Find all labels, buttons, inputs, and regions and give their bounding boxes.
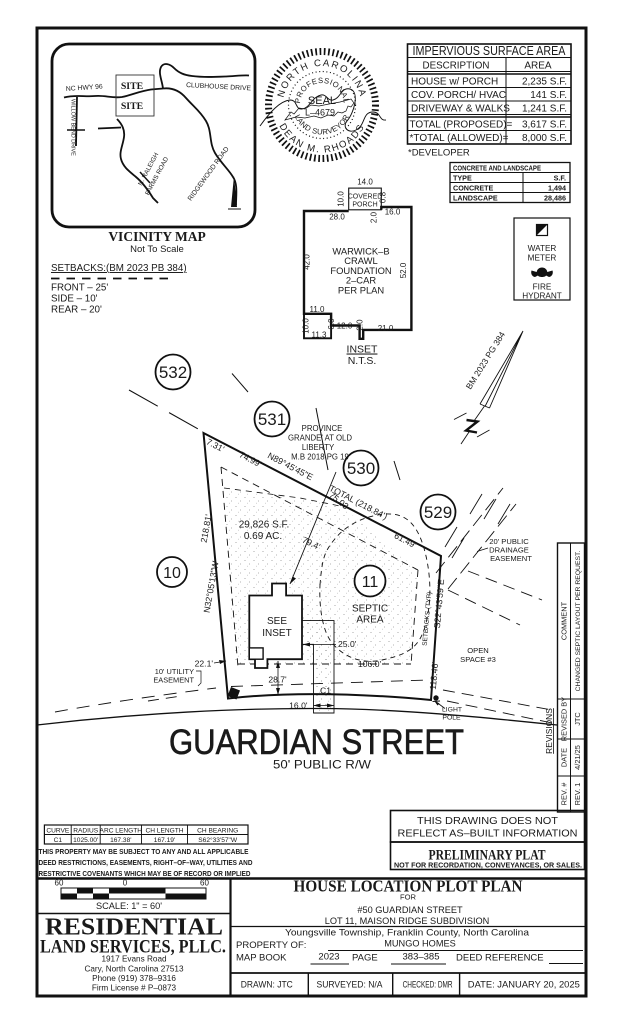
- svg-text:Phone (919) 378–9316: Phone (919) 378–9316: [92, 974, 176, 983]
- svg-text:141 S.F.: 141 S.F.: [530, 90, 567, 101]
- svg-text:CH BEARING: CH BEARING: [197, 827, 238, 834]
- svg-text:EASEMENT: EASEMENT: [490, 554, 532, 563]
- svg-text:3,617 S.F.: 3,617 S.F.: [522, 120, 567, 131]
- svg-text:M.B 2018 PG 19: M.B 2018 PG 19: [291, 453, 349, 462]
- svg-text:16.0: 16.0: [385, 208, 401, 217]
- svg-text:Firm License # P–0873: Firm License # P–0873: [92, 984, 177, 993]
- svg-text:4/21/25: 4/21/25: [573, 745, 582, 770]
- svg-text:Cary, North Carolina 27513: Cary, North Carolina 27513: [84, 965, 184, 974]
- svg-text:1,494: 1,494: [548, 184, 566, 193]
- svg-text:10.0: 10.0: [302, 318, 311, 334]
- svg-text:6.0: 6.0: [327, 318, 336, 330]
- svg-text:0.8: 0.8: [379, 191, 388, 203]
- svg-text:CONCRETE: CONCRETE: [453, 184, 494, 193]
- svg-text:THIS PROPERTY MAY BE SUBJECT T: THIS PROPERTY MAY BE SUBJECT TO ANY AND …: [39, 847, 249, 856]
- svg-text:GRANDE' AT OLD: GRANDE' AT OLD: [288, 434, 352, 443]
- svg-text:28.0: 28.0: [329, 213, 345, 222]
- svg-text:FRONT – 25': FRONT – 25': [51, 283, 108, 294]
- svg-text:SITE: SITE: [121, 101, 144, 112]
- svg-text:THIS DRAWING DOES NOT: THIS DRAWING DOES NOT: [417, 815, 559, 827]
- svg-text:SPACE #3: SPACE #3: [460, 655, 496, 664]
- svg-text:CHANGED SEPTIC LAYOUT PER REQU: CHANGED SEPTIC LAYOUT PER REQUEST.: [575, 551, 582, 692]
- svg-text:1025.00': 1025.00': [73, 837, 98, 844]
- svg-text:INSET: INSET: [347, 344, 379, 356]
- svg-text:C1: C1: [54, 837, 63, 844]
- svg-text:CURVE: CURVE: [46, 827, 70, 834]
- svg-text:REV. #: REV. #: [560, 782, 569, 806]
- svg-text:14.0: 14.0: [357, 178, 373, 187]
- svg-text:*DEVELOPER: *DEVELOPER: [408, 148, 470, 159]
- svg-text:JTC: JTC: [573, 712, 582, 726]
- svg-text:22.1': 22.1': [195, 659, 214, 669]
- svg-text:OPEN: OPEN: [467, 646, 489, 655]
- svg-text:Not To Scale: Not To Scale: [130, 244, 184, 255]
- svg-text:LANDSCAPE: LANDSCAPE: [453, 194, 498, 203]
- svg-text:DEED REFERENCE: DEED REFERENCE: [456, 953, 544, 964]
- svg-text:POLE: POLE: [442, 715, 461, 722]
- svg-text:FIRE: FIRE: [533, 283, 552, 292]
- svg-text:PROVINCE: PROVINCE: [302, 424, 343, 433]
- svg-text:0.69 AC.: 0.69 AC.: [244, 531, 282, 542]
- svg-text:SCALE: 1" = 60': SCALE: 1" = 60': [96, 901, 162, 911]
- svg-text:AREA: AREA: [524, 61, 552, 72]
- svg-text:SEE: SEE: [267, 616, 287, 627]
- svg-text:21.0: 21.0: [378, 324, 394, 333]
- svg-text:INSET: INSET: [262, 628, 291, 639]
- svg-text:REVISED BY: REVISED BY: [560, 697, 569, 741]
- svg-text:10: 10: [163, 565, 181, 582]
- svg-text:TOTAL (PROPOSED)=: TOTAL (PROPOSED)=: [410, 120, 513, 131]
- svg-text:LIBERTY: LIBERTY: [302, 443, 335, 452]
- svg-text:WILLOW BEND DRIVE: WILLOW BEND DRIVE: [70, 99, 76, 156]
- svg-text:NOT FOR RECORDATION, CONVEYANC: NOT FOR RECORDATION, CONVEYANCES, OR SAL…: [394, 861, 582, 870]
- svg-text:HOUSE w/ PORCH: HOUSE w/ PORCH: [411, 77, 498, 88]
- svg-text:GUARDIAN STREET: GUARDIAN STREET: [169, 723, 464, 762]
- svg-text:DESCRIPTION: DESCRIPTION: [423, 61, 490, 72]
- svg-text:REAR – 20': REAR – 20': [51, 305, 102, 316]
- svg-text:PAGE: PAGE: [352, 953, 378, 964]
- svg-text:COVERED: COVERED: [348, 194, 383, 201]
- svg-text:METER: METER: [528, 254, 557, 263]
- svg-text:2.0: 2.0: [370, 211, 379, 223]
- svg-text:MAP BOOK: MAP BOOK: [236, 953, 287, 964]
- svg-text:25.0': 25.0': [338, 639, 357, 649]
- svg-text:S.F.: S.F.: [554, 174, 566, 183]
- svg-text:ARC LENGTH: ARC LENGTH: [100, 827, 143, 834]
- svg-text:#50 GUARDIAN STREET: #50 GUARDIAN STREET: [357, 905, 463, 915]
- svg-text:106.0': 106.0': [358, 659, 382, 669]
- svg-text:DRAWN: JTC: DRAWN: JTC: [241, 980, 294, 990]
- svg-text:RESTRICTIVE COVENANTS WHICH MA: RESTRICTIVE COVENANTS WHICH MAY BE OF RE…: [39, 869, 251, 878]
- svg-text:0: 0: [123, 879, 128, 888]
- svg-text:AREA: AREA: [356, 615, 384, 626]
- svg-text:TYPE: TYPE: [453, 174, 472, 183]
- svg-text:1,241 S.F.: 1,241 S.F.: [522, 104, 567, 115]
- svg-text:12.0: 12.0: [337, 322, 353, 331]
- svg-text:29,826 S.F.: 29,826 S.F.: [239, 520, 290, 531]
- svg-text:LIGHT: LIGHT: [442, 707, 462, 714]
- svg-text:PORCH: PORCH: [352, 202, 377, 209]
- svg-text:60: 60: [55, 879, 64, 888]
- svg-text:PROPERTY OF:: PROPERTY OF:: [236, 940, 306, 951]
- svg-text:2023: 2023: [318, 952, 339, 963]
- svg-text:MUNGO HOMES: MUNGO HOMES: [384, 939, 455, 949]
- svg-text:2.0: 2.0: [356, 319, 365, 331]
- svg-text:IMPERVIOUS SURFACE AREA: IMPERVIOUS SURFACE AREA: [413, 44, 567, 58]
- svg-text:REVISIONS: REVISIONS: [544, 708, 554, 754]
- svg-text:SETBACKS:(BM 2023 PB 384): SETBACKS:(BM 2023 PB 384): [51, 263, 187, 274]
- svg-text:S62°33'57"W: S62°33'57"W: [198, 836, 238, 844]
- svg-text:SURVEYED: N/A: SURVEYED: N/A: [317, 980, 383, 990]
- svg-text:529: 529: [424, 503, 452, 522]
- svg-text:HYDRANT: HYDRANT: [522, 292, 562, 301]
- svg-text:REFLECT AS–BUILT INFORMATION: REFLECT AS–BUILT INFORMATION: [398, 828, 578, 840]
- svg-text:FOR: FOR: [400, 893, 417, 902]
- svg-text:Youngsville Township, Frankl: Youngsville Township, Franklin County, N…: [285, 928, 530, 938]
- svg-text:SITE: SITE: [121, 81, 144, 92]
- svg-text:COV. PORCH/ HVAC: COV. PORCH/ HVAC: [411, 90, 506, 101]
- svg-text:N.T.S.: N.T.S.: [348, 355, 377, 367]
- svg-text:532: 532: [159, 363, 187, 382]
- svg-text:CH LENGTH: CH LENGTH: [145, 827, 183, 834]
- svg-text:WATER: WATER: [528, 244, 557, 253]
- svg-text:SEPTIC: SEPTIC: [352, 604, 388, 615]
- svg-text:REV. 1: REV. 1: [573, 783, 582, 806]
- svg-text:DRIVEWAY & WALKS: DRIVEWAY & WALKS: [411, 104, 510, 115]
- svg-text:COMMENT: COMMENT: [560, 601, 569, 640]
- svg-text:*TOTAL (ALLOWED)=: *TOTAL (ALLOWED)=: [410, 133, 509, 144]
- svg-text:11.0: 11.0: [310, 305, 326, 314]
- svg-text:LOT 11, MAISON RIDGE SUBDI: LOT 11, MAISON RIDGE SUBDIVISION: [325, 916, 490, 926]
- svg-text:SIDE – 10': SIDE – 10': [51, 294, 98, 305]
- svg-text:DATE: JANUARY 20, 2025: DATE: JANUARY 20, 2025: [468, 980, 580, 990]
- svg-text:50' PUBLIC R/W: 50' PUBLIC R/W: [273, 758, 372, 772]
- svg-text:CHECKED: DMR: CHECKED: DMR: [403, 980, 453, 990]
- svg-text:11: 11: [362, 574, 379, 591]
- svg-text:1917 Evans Road: 1917 Evans Road: [101, 955, 167, 964]
- svg-text:RADIUS: RADIUS: [73, 827, 99, 834]
- svg-text:42.0: 42.0: [303, 254, 312, 270]
- svg-text:DEED RESTRICTIONS, EASEMENTS,: DEED RESTRICTIONS, EASEMENTS, RIGHT–OF–W…: [39, 858, 253, 867]
- svg-text:60: 60: [200, 879, 209, 888]
- svg-text:167.19': 167.19': [154, 837, 175, 844]
- svg-text:10.0: 10.0: [337, 191, 346, 207]
- svg-text:8,000 S.F.: 8,000 S.F.: [522, 133, 567, 144]
- svg-text:28,486: 28,486: [544, 194, 566, 203]
- svg-text:2,235 S.F.: 2,235 S.F.: [522, 77, 567, 88]
- svg-text:C1: C1: [320, 686, 331, 696]
- svg-text:167.38': 167.38': [110, 837, 131, 844]
- svg-text:PER PLAN: PER PLAN: [338, 284, 384, 295]
- svg-text:EASEMENT: EASEMENT: [153, 676, 194, 685]
- svg-text:531: 531: [258, 410, 286, 429]
- svg-text:383–385: 383–385: [403, 952, 440, 963]
- svg-text:L–4679: L–4679: [305, 108, 335, 118]
- svg-text:11.3: 11.3: [312, 331, 328, 340]
- svg-text:CONCRETE AND LANDSCAPE: CONCRETE AND LANDSCAPE: [453, 164, 541, 173]
- svg-text:DATE: DATE: [560, 748, 569, 767]
- svg-text:530: 530: [347, 459, 375, 478]
- svg-text:52.0: 52.0: [399, 262, 408, 278]
- svg-text:VICINITY MAP: VICINITY MAP: [108, 229, 205, 244]
